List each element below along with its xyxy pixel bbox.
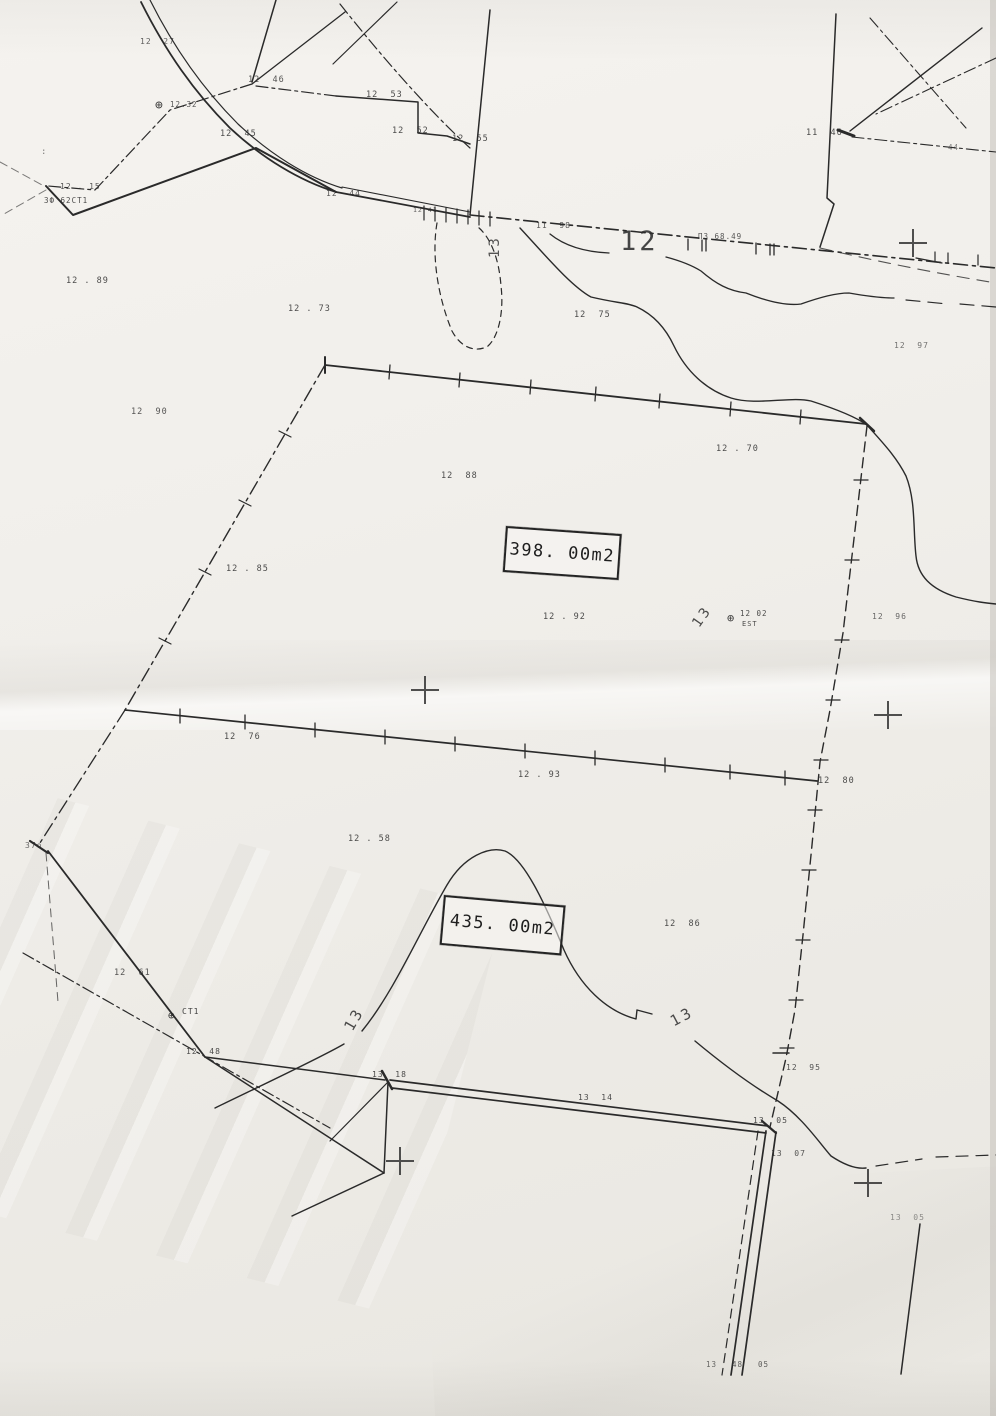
spot-elevation-label: ⊕ [727, 612, 735, 624]
spot-elevation-label: 12 53 [366, 91, 403, 100]
grid-cross-marker [411, 676, 439, 704]
scanned-cadastral-map: 12 2712 4612 5312 5212 55⊕12.3212 4512 .… [0, 0, 996, 1416]
spot-elevation-label: 12 41 [413, 207, 438, 214]
spot-elevation-label: 13 05 [890, 1214, 925, 1222]
spot-elevation-label: 13 07 [771, 1150, 806, 1158]
spot-elevation-label: 12 97 [894, 342, 929, 350]
spot-elevation-label: 12 . 15 [60, 183, 101, 191]
spot-elevation-label: 12 . 85 [226, 565, 269, 574]
spot-elevation-label: CT1 [182, 1008, 199, 1016]
spot-elevation-label: 12 27 [140, 38, 175, 46]
grid-cross-marker [854, 1169, 882, 1197]
spot-elevation-label: 12 80 [818, 777, 855, 786]
contour-line-13-lower [215, 850, 996, 1168]
spot-elevation-label: 12 . 89 [66, 277, 109, 286]
grid-cross-marker [386, 1147, 414, 1175]
spot-elevation-label: 12 45 [220, 130, 257, 139]
spot-elevation-label: 11 46 [806, 129, 843, 138]
spot-elevation-label: : [41, 148, 47, 157]
spot-elevation-label: 13 14 [578, 1094, 613, 1102]
spot-elevation-label: ⊕ [168, 1010, 176, 1021]
spot-elevation-label: 37o [25, 842, 42, 850]
spot-elevation-label: 12 55 [452, 135, 489, 144]
spot-elevation-label: 12 90 [131, 408, 168, 417]
upper-right-boundaries [820, 14, 996, 247]
spot-elevation-label: 12 61 [114, 969, 151, 978]
survey-linework [0, 0, 996, 1416]
spot-elevation-label: 12.32 [170, 101, 198, 109]
spot-elevation-label: 13 05 [753, 1117, 788, 1125]
spot-elevation-label: 12 . 93 [518, 771, 561, 780]
spot-elevation-label: 12 46 [248, 76, 285, 85]
spot-elevation-label: 12 . 92 [543, 613, 586, 622]
spot-elevation-label: 12 95 [786, 1064, 821, 1072]
spot-elevation-label: 12 52 [392, 127, 429, 136]
spot-elevation-label: 12 86 [664, 920, 701, 929]
spot-elevation-label: 3Ф 62CT1 [44, 197, 88, 205]
grid-cross-marker [874, 701, 902, 729]
contour-label: 12 [620, 228, 659, 255]
grid-cross-marker [899, 229, 927, 257]
spot-elevation-label: 12 . 58 [348, 835, 391, 844]
spot-elevation-label: 48 [732, 1361, 743, 1369]
spot-elevation-label: ПЗ 68.49 [698, 233, 742, 241]
road-bottom [382, 1071, 776, 1375]
road-upper-curve [141, 0, 342, 192]
parcel-area-label-box: 435. 00m2 [440, 895, 566, 955]
spot-elevation-label: 12 75 [574, 311, 611, 320]
parcel-upper-boundary [38, 357, 874, 846]
spot-elevation-label: 11 98 [536, 222, 571, 230]
spot-elevation-label: 12 44 [326, 190, 361, 198]
spot-elevation-label: 44 [948, 144, 959, 152]
spot-elevation-label: 12 . 70 [716, 445, 759, 454]
spot-elevation-label: 12 96 [872, 613, 907, 621]
spot-elevation-label: EST [742, 621, 758, 628]
spot-elevation-label: 12 48 [186, 1048, 221, 1056]
spot-elevation-label: 12 02 [740, 610, 768, 618]
spot-elevation-label: 05 [758, 1361, 769, 1369]
spot-elevation-label: ⊕ [155, 99, 164, 112]
bottom-left-crossing-lines [23, 841, 388, 1216]
spot-elevation-label: 13 18 [372, 1071, 407, 1079]
spot-elevation-label: 12 88 [441, 472, 478, 481]
contour-label: 13 [488, 235, 502, 258]
parcel-area-label-box: 398. 00m2 [503, 526, 622, 580]
spot-elevation-label: 12 . 73 [288, 305, 331, 314]
spot-elevation-label: 12 76 [224, 733, 261, 742]
spot-elevation-label: 13 [706, 1361, 717, 1369]
bottom-right-lines [901, 1224, 920, 1374]
